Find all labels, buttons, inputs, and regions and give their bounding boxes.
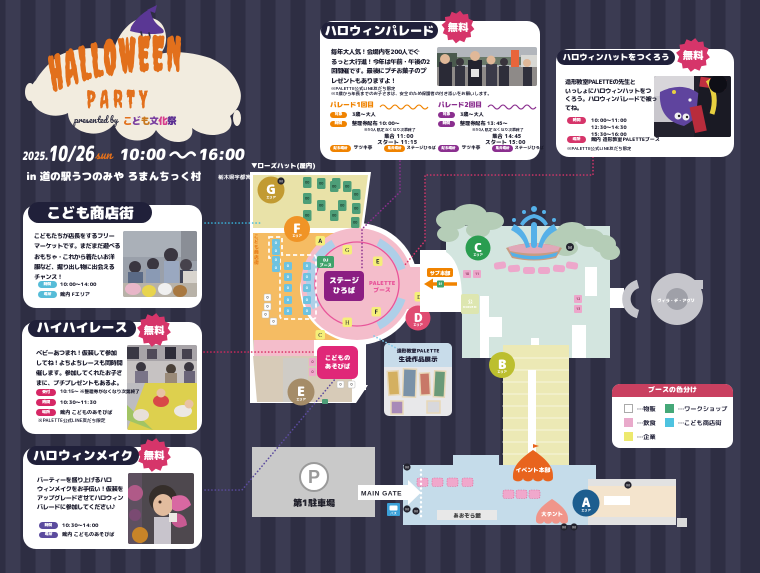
svg-text:無料: 無料 [683,49,704,63]
